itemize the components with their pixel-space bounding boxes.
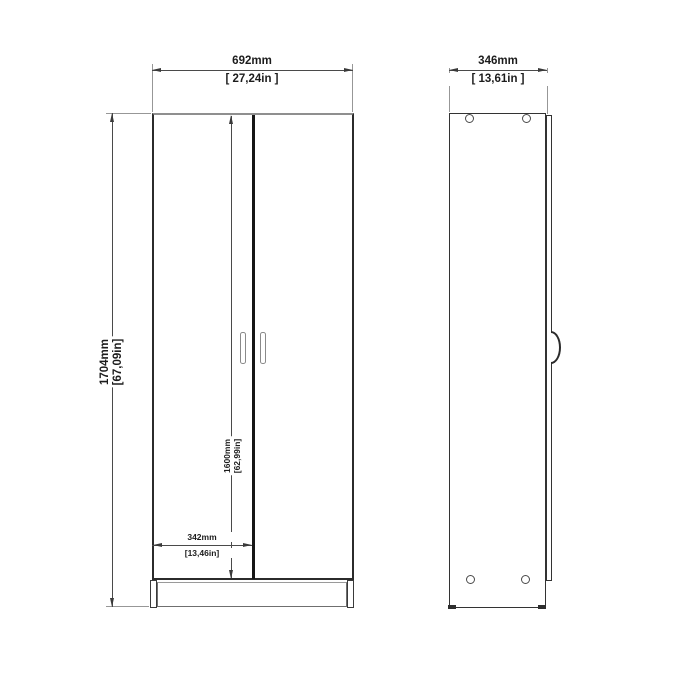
technical-drawing: 692mm [ 27,24in ] 1704mm [67,09in] 1600m… (0, 0, 700, 700)
dimension-line (449, 70, 547, 71)
overall-height-label: 1704mm [67,09in] (99, 337, 125, 388)
door-width-label-in: [13,46in] (162, 548, 242, 558)
dim-arrow-up (229, 115, 233, 124)
dim-arrow-left (449, 68, 458, 72)
door-height-label-mm: 1600mm (222, 439, 232, 473)
side-left-foot (448, 605, 456, 609)
dimension-line (231, 116, 232, 578)
front-left-foot (150, 580, 157, 608)
screw-hole (466, 575, 475, 584)
door-divider-line (252, 115, 255, 579)
door-height-label-in: [62,99in] (232, 439, 242, 474)
overall-width-label-mm: 692mm (192, 55, 312, 68)
right-door-handle (260, 332, 266, 364)
dimension-line (152, 545, 252, 546)
dim-arrow-down (229, 570, 233, 579)
dim-arrow-up (110, 113, 114, 122)
dimension-line (152, 70, 353, 71)
left-door-handle (240, 332, 246, 364)
screw-hole (522, 114, 531, 123)
side-body-outline (449, 113, 546, 608)
door-height-label: 1600mm [62,99in] (222, 437, 242, 476)
screw-hole (521, 575, 530, 584)
side-right-foot (538, 605, 546, 609)
dim-arrow-left (152, 68, 161, 72)
screw-hole (465, 114, 474, 123)
depth-label-in: [ 13,61in ] (438, 73, 558, 86)
overall-height-label-mm: 1704mm (99, 339, 112, 385)
front-right-foot (347, 580, 354, 608)
overall-width-label-in: [ 27,24in ] (192, 73, 312, 86)
dim-arrow-left (153, 543, 162, 547)
plinth-panel (157, 582, 347, 607)
extension-line (547, 64, 548, 114)
side-handle-profile (551, 331, 561, 364)
dim-arrow-down (110, 598, 114, 607)
dim-arrow-right (344, 68, 353, 72)
overall-height-label-in: [67,09in] (112, 339, 125, 386)
depth-label-mm: 346mm (438, 55, 558, 68)
dim-arrow-right (243, 543, 252, 547)
dim-arrow-right (538, 68, 547, 72)
door-width-label-mm: 342mm (162, 532, 242, 542)
